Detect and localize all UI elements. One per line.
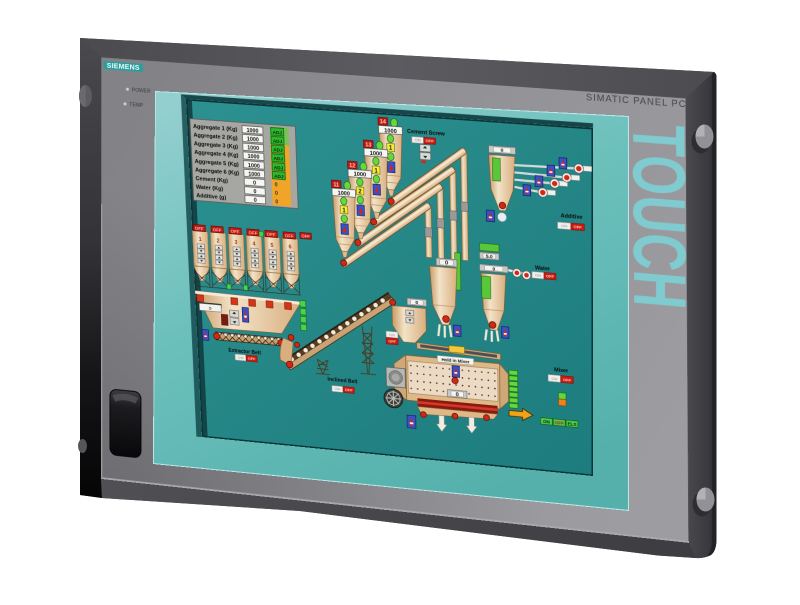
svg-text:OFF: OFF [425,138,434,144]
svg-text:OFF: OFF [345,387,353,393]
svg-text:OFF: OFF [249,230,258,236]
svg-text:ADJ: ADJ [273,147,283,154]
svg-text:ELS: ELS [568,421,577,427]
svg-text:POWER: POWER [132,87,151,95]
svg-text:1000: 1000 [247,128,259,135]
svg-text:4: 4 [252,241,255,247]
svg-text:OFF: OFF [301,233,310,239]
svg-text:ON: ON [543,419,551,425]
svg-text:OFF: OFF [231,229,240,235]
svg-text:0: 0 [445,260,448,266]
svg-text:Water: Water [535,265,551,272]
svg-text:ADJ: ADJ [273,156,283,163]
svg-text:OFF: OFF [388,340,396,345]
svg-text:OFF: OFF [546,273,555,279]
svg-text:2: 2 [217,238,220,244]
svg-text:ON: ON [535,273,541,279]
svg-text:ON: ON [389,333,395,337]
svg-text:ON: ON [551,376,557,382]
svg-text:ADJ: ADJ [272,130,282,137]
svg-text:ON: ON [334,386,340,391]
svg-text:0: 0 [415,300,418,306]
svg-text:OFF: OFF [555,420,564,426]
svg-text:13: 13 [365,142,371,149]
svg-text:OFF: OFF [285,233,294,239]
svg-text:0: 0 [275,191,278,197]
svg-text:ON: ON [561,223,567,229]
svg-text:11: 11 [333,182,339,189]
svg-text:OFF: OFF [213,227,222,233]
svg-text:OFF: OFF [195,226,204,232]
svg-text:0: 0 [253,180,256,186]
svg-text:0: 0 [209,306,212,312]
svg-text:1000: 1000 [338,191,351,198]
svg-text:1: 1 [199,237,202,243]
svg-text:ADJ: ADJ [273,138,283,145]
svg-text:0: 0 [501,148,504,154]
svg-text:ON: ON [238,355,244,360]
svg-text:1000: 1000 [354,172,367,179]
svg-text:1000: 1000 [384,128,397,135]
svg-text:1000: 1000 [247,137,259,144]
svg-text:OFF: OFF [563,377,572,383]
svg-text:6: 6 [289,244,292,250]
svg-text:ADJ: ADJ [274,165,284,172]
svg-text:TEMP: TEMP [129,102,143,109]
svg-text:14: 14 [380,119,386,126]
svg-text:0: 0 [275,182,278,188]
svg-text:1000: 1000 [248,171,260,178]
svg-text:1000: 1000 [370,151,383,158]
svg-text:5: 5 [270,243,273,249]
svg-text:5.0: 5.0 [486,254,493,261]
svg-text:1000: 1000 [247,145,259,152]
svg-text:ADJ: ADJ [274,173,284,180]
svg-text:0: 0 [275,200,278,206]
svg-text:OFF: OFF [248,356,256,362]
svg-text:Mixer: Mixer [554,367,569,374]
svg-text:0: 0 [254,198,257,204]
svg-text:0: 0 [253,189,256,195]
svg-text:0: 0 [456,392,459,398]
svg-text:ON: ON [415,137,421,143]
svg-text:12: 12 [349,163,355,170]
svg-text:1000: 1000 [248,163,260,170]
svg-text:OFF: OFF [267,232,276,238]
svg-text:1000: 1000 [248,154,260,161]
svg-text:OFF: OFF [573,224,582,230]
svg-text:0: 0 [492,266,495,272]
svg-text:3: 3 [234,240,237,246]
